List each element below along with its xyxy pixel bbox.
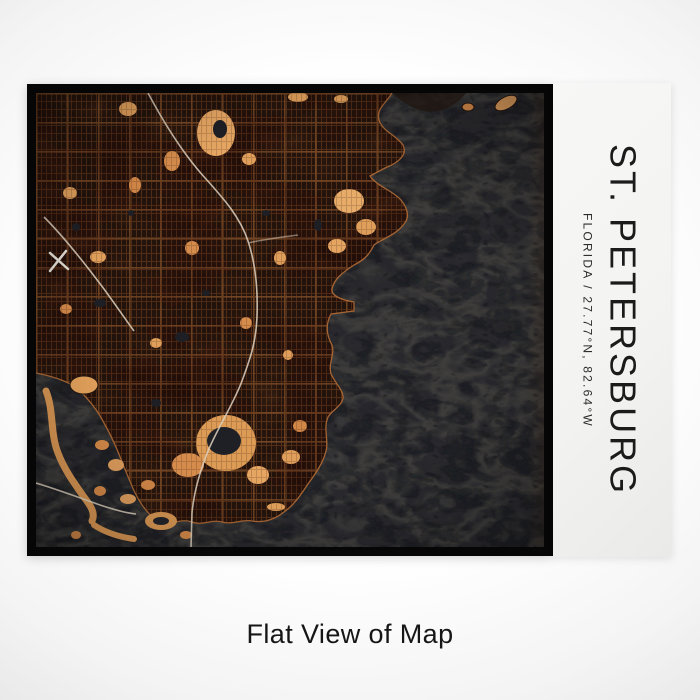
flat-view-caption: Flat View of Map — [0, 619, 700, 650]
map-image — [36, 93, 544, 547]
product-page: { "page": { "caption": "Flat View of Map… — [0, 0, 700, 700]
map-title: ST. PETERSBURG — [602, 144, 644, 496]
map-print-frame — [27, 84, 553, 556]
map-subtitle: FLORIDA / 27.77°N, 82.64°W — [581, 213, 595, 428]
edge-vignette — [36, 93, 544, 547]
label-panel: FLORIDA / 27.77°N, 82.64°W ST. PETERSBUR… — [553, 83, 671, 557]
